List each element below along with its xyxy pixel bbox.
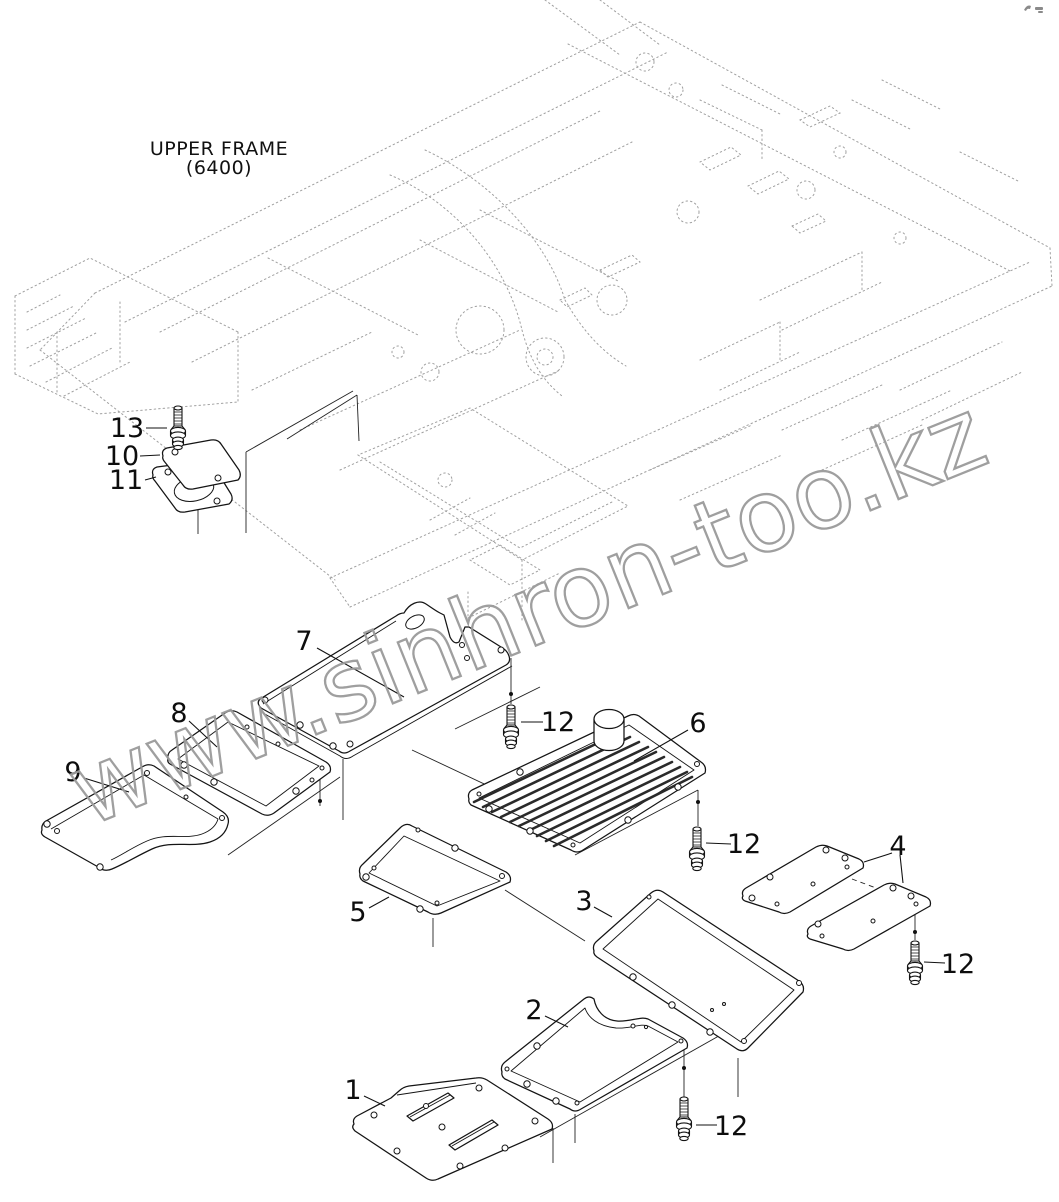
callout-12-a: 12 [521,707,575,738]
part-1-plate [353,1078,553,1181]
callout-4-label: 4 [889,831,906,862]
part-12-bolt [908,941,923,985]
callout-12-b: 12 [706,829,761,860]
callout-1-label: 1 [344,1075,361,1106]
callout-11: 11 [109,465,156,496]
callout-11-label: 11 [109,465,143,496]
callout-13-label: 13 [110,413,144,444]
callout-5: 5 [349,897,389,928]
callout-12-label: 12 [941,949,975,980]
callout-13: 13 [110,413,167,444]
callout-5-label: 5 [349,897,366,928]
exhaust-pipe-collar [594,710,624,751]
callout-12-label: 12 [541,707,575,738]
part-13-bolt [171,406,186,450]
frame-code: (6400) [186,157,252,179]
part-12-bolt [690,827,705,871]
callout-4: 4 [864,831,907,883]
callout-12-c: 12 [924,949,975,980]
parts-diagram-page: 13 10 11 7 8 9 12 6 [0,0,1059,1202]
callout-6-label: 6 [689,708,706,739]
callout-3: 3 [575,886,612,917]
ghost-upper-frame-drawing [15,0,1052,622]
part-12-bolt [504,705,519,749]
callout-1: 1 [344,1075,385,1106]
title-block: UPPER FRAME (6400) [150,138,288,179]
print-artifact [1024,6,1043,14]
callout-3-label: 3 [575,886,592,917]
callout-12-label: 12 [727,829,761,860]
part-12-bolt [677,1097,692,1141]
callout-2-label: 2 [525,995,542,1026]
callout-12-d: 12 [696,1111,748,1142]
callout-12-label: 12 [714,1111,748,1142]
part-4-plate-lower [807,883,930,950]
